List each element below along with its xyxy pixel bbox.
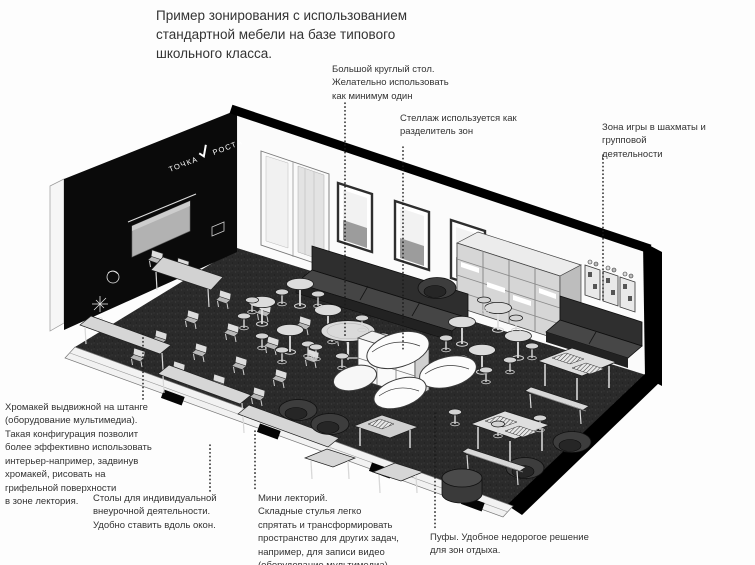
callout-shelf-divider: Стеллаж используется как разделитель зон <box>400 112 570 139</box>
page: ТОЧКА РОСТА <box>0 0 755 565</box>
callout-poufs: Пуфы. Удобное недорогое решение для зон … <box>430 531 650 558</box>
callout-chess-zone: Зона игры в шахматы и групповой деятельн… <box>602 121 752 161</box>
right-wall-edge <box>643 242 662 386</box>
dark-pouf <box>442 469 482 503</box>
callout-big-round-table: Большой круглый стол. Желательно использ… <box>332 63 492 103</box>
callout-individual-desks: Столы для индивидуальной внеурочной деят… <box>93 492 263 532</box>
diagram-title: Пример зонирования с использованием стан… <box>156 6 466 63</box>
left-wall-outer-edge <box>50 179 64 331</box>
callout-mini-lecture: Мини лекторий. Складные стулья легко спр… <box>258 492 448 565</box>
